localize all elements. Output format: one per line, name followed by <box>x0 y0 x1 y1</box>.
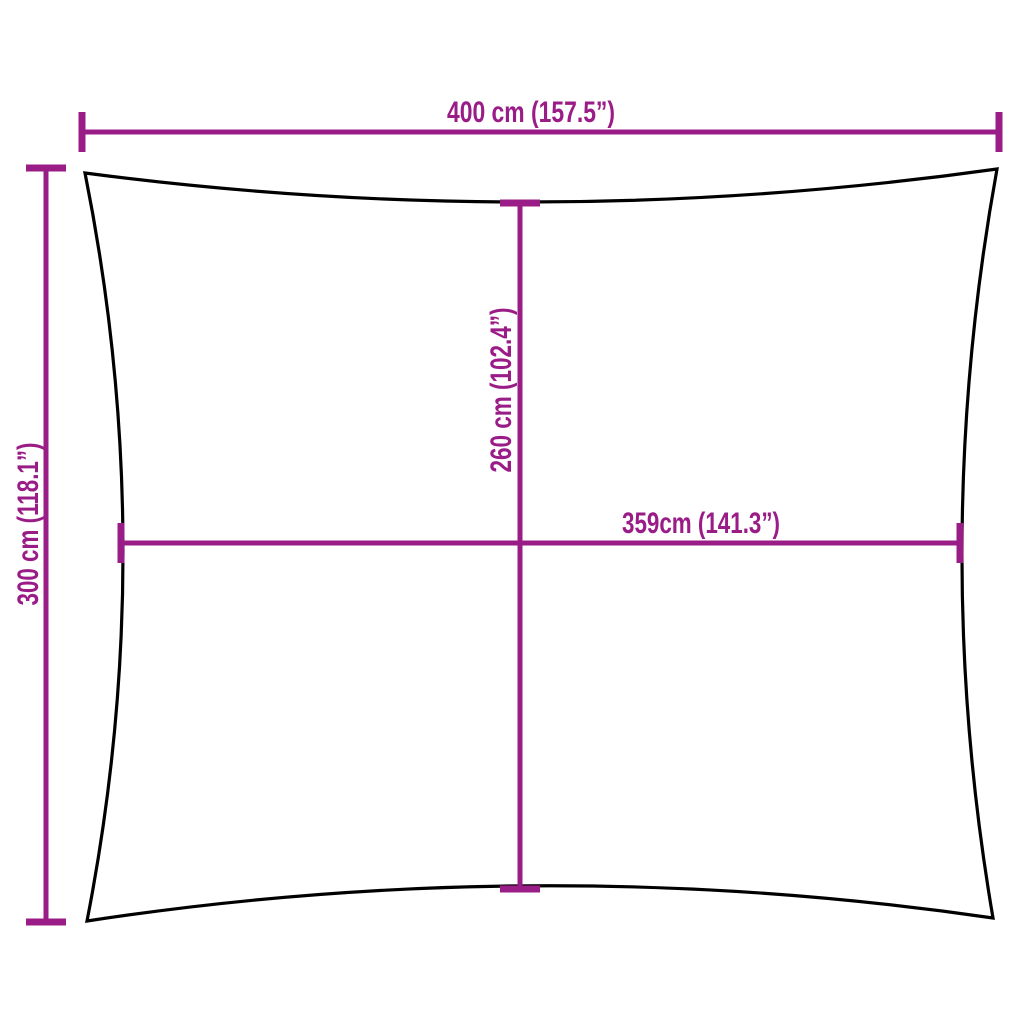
outer-height-dimension: 300 cm (118.1”) <box>12 168 66 922</box>
outer-height-label: 300 cm (118.1”) <box>12 443 45 606</box>
inner-height-label: 260 cm (102.4”) <box>485 308 518 473</box>
diagram-canvas: 400 cm (157.5”) 300 cm (118.1”) 260 cm (… <box>0 0 1024 1024</box>
outer-width-label: 400 cm (157.5”) <box>447 96 615 129</box>
product-dimension-diagram: 400 cm (157.5”) 300 cm (118.1”) 260 cm (… <box>0 0 1024 1024</box>
inner-width-label: 359cm (141.3”) <box>622 507 780 540</box>
outer-width-dimension: 400 cm (157.5”) <box>82 96 999 152</box>
